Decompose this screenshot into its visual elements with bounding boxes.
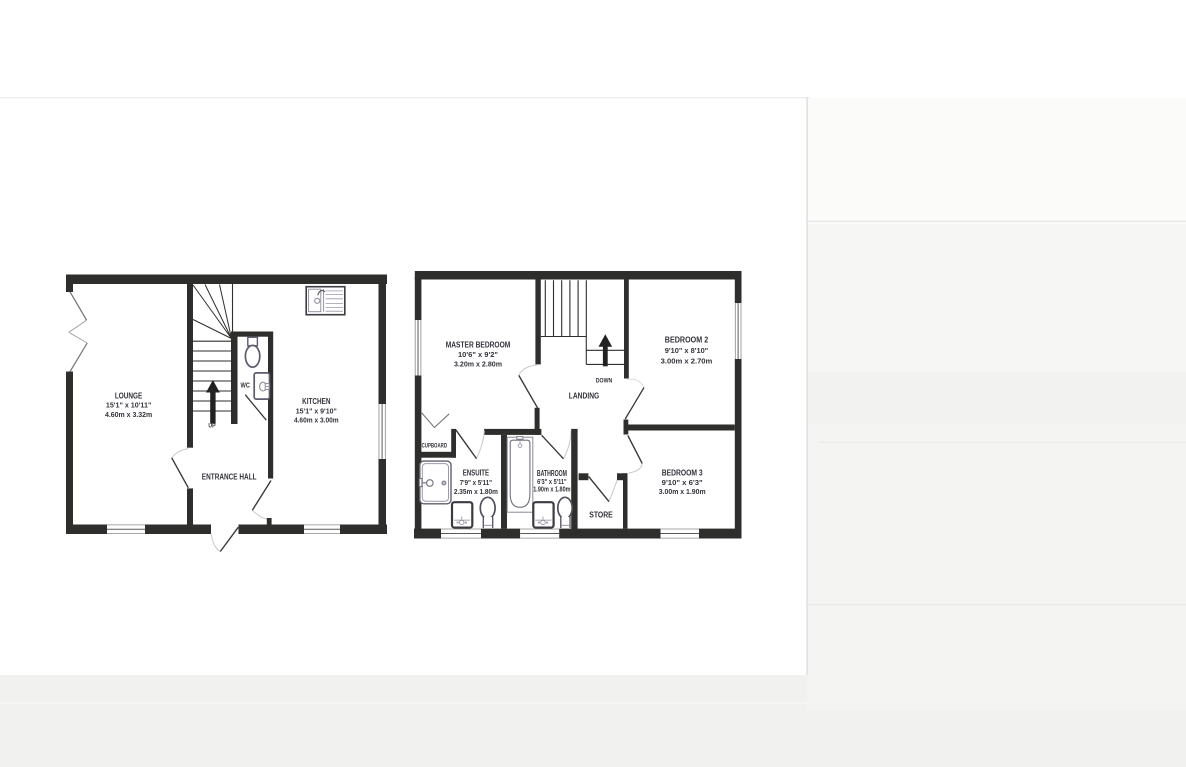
svg-text:4.60m x 3.32m: 4.60m x 3.32m — [105, 410, 152, 419]
svg-text:3.00m x 1.90m: 3.00m x 1.90m — [659, 487, 706, 496]
svg-text:7'9" x 5'11": 7'9" x 5'11" — [460, 478, 492, 487]
svg-text:4.60m x 3.00m: 4.60m x 3.00m — [294, 415, 339, 424]
svg-text:UP: UP — [208, 424, 215, 430]
svg-text:2.35m x 1.80m: 2.35m x 1.80m — [454, 487, 498, 496]
svg-text:LOUNGE: LOUNGE — [115, 391, 143, 400]
svg-text:3.00m x 2.70m: 3.00m x 2.70m — [661, 356, 713, 365]
svg-text:ENSUITE: ENSUITE — [463, 468, 489, 477]
svg-text:BEDROOM 2: BEDROOM 2 — [665, 336, 709, 345]
svg-text:STORE: STORE — [589, 510, 613, 519]
svg-text:WC: WC — [241, 381, 250, 390]
svg-text:BEDROOM 3: BEDROOM 3 — [662, 468, 704, 477]
svg-text:10'6" x 9'2": 10'6" x 9'2" — [458, 350, 498, 359]
svg-text:ENTRANCE HALL: ENTRANCE HALL — [202, 472, 257, 481]
svg-text:KITCHEN: KITCHEN — [302, 397, 331, 406]
svg-text:9'10" x 6'3": 9'10" x 6'3" — [662, 478, 703, 487]
svg-text:CUPBOARD: CUPBOARD — [422, 443, 448, 449]
svg-text:DOWN: DOWN — [596, 378, 612, 384]
svg-text:15'1" x 10'11": 15'1" x 10'11" — [106, 401, 152, 410]
svg-text:15'1" x 9'10": 15'1" x 9'10" — [296, 406, 337, 415]
svg-text:LANDING: LANDING — [569, 391, 600, 400]
svg-text:1.90m x 1.80m: 1.90m x 1.80m — [533, 485, 570, 494]
svg-text:MASTER BEDROOM: MASTER BEDROOM — [446, 341, 511, 350]
svg-text:3.20m x 2.80m: 3.20m x 2.80m — [454, 360, 502, 369]
svg-text:9'10" x 8'10": 9'10" x 8'10" — [665, 346, 708, 355]
